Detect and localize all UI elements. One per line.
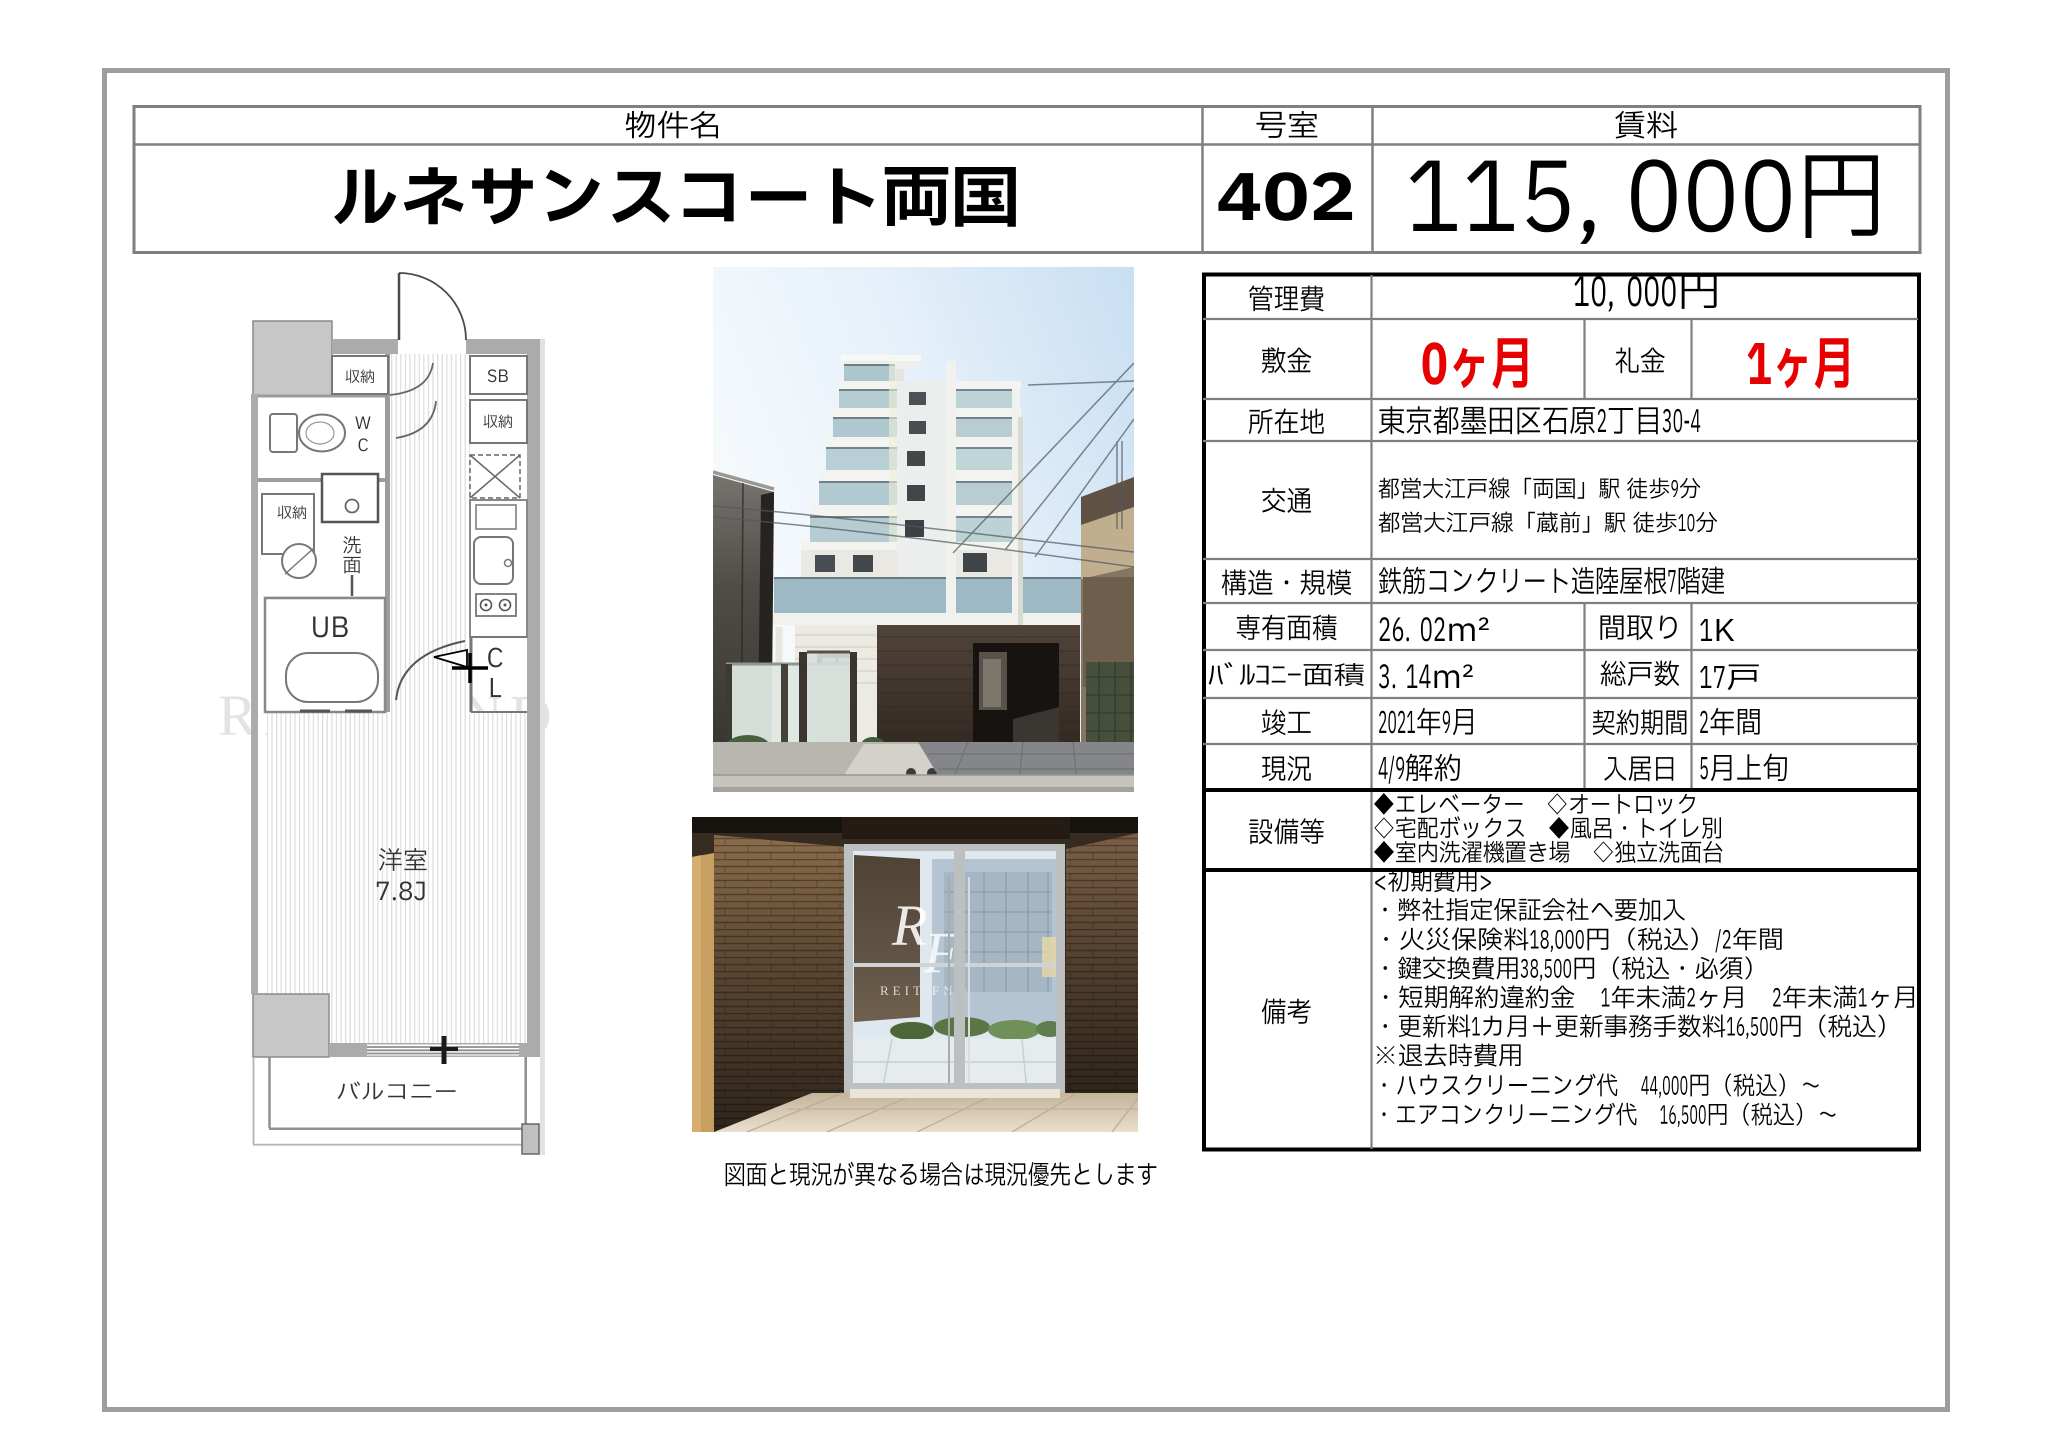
svg-text:R: R <box>891 893 927 958</box>
